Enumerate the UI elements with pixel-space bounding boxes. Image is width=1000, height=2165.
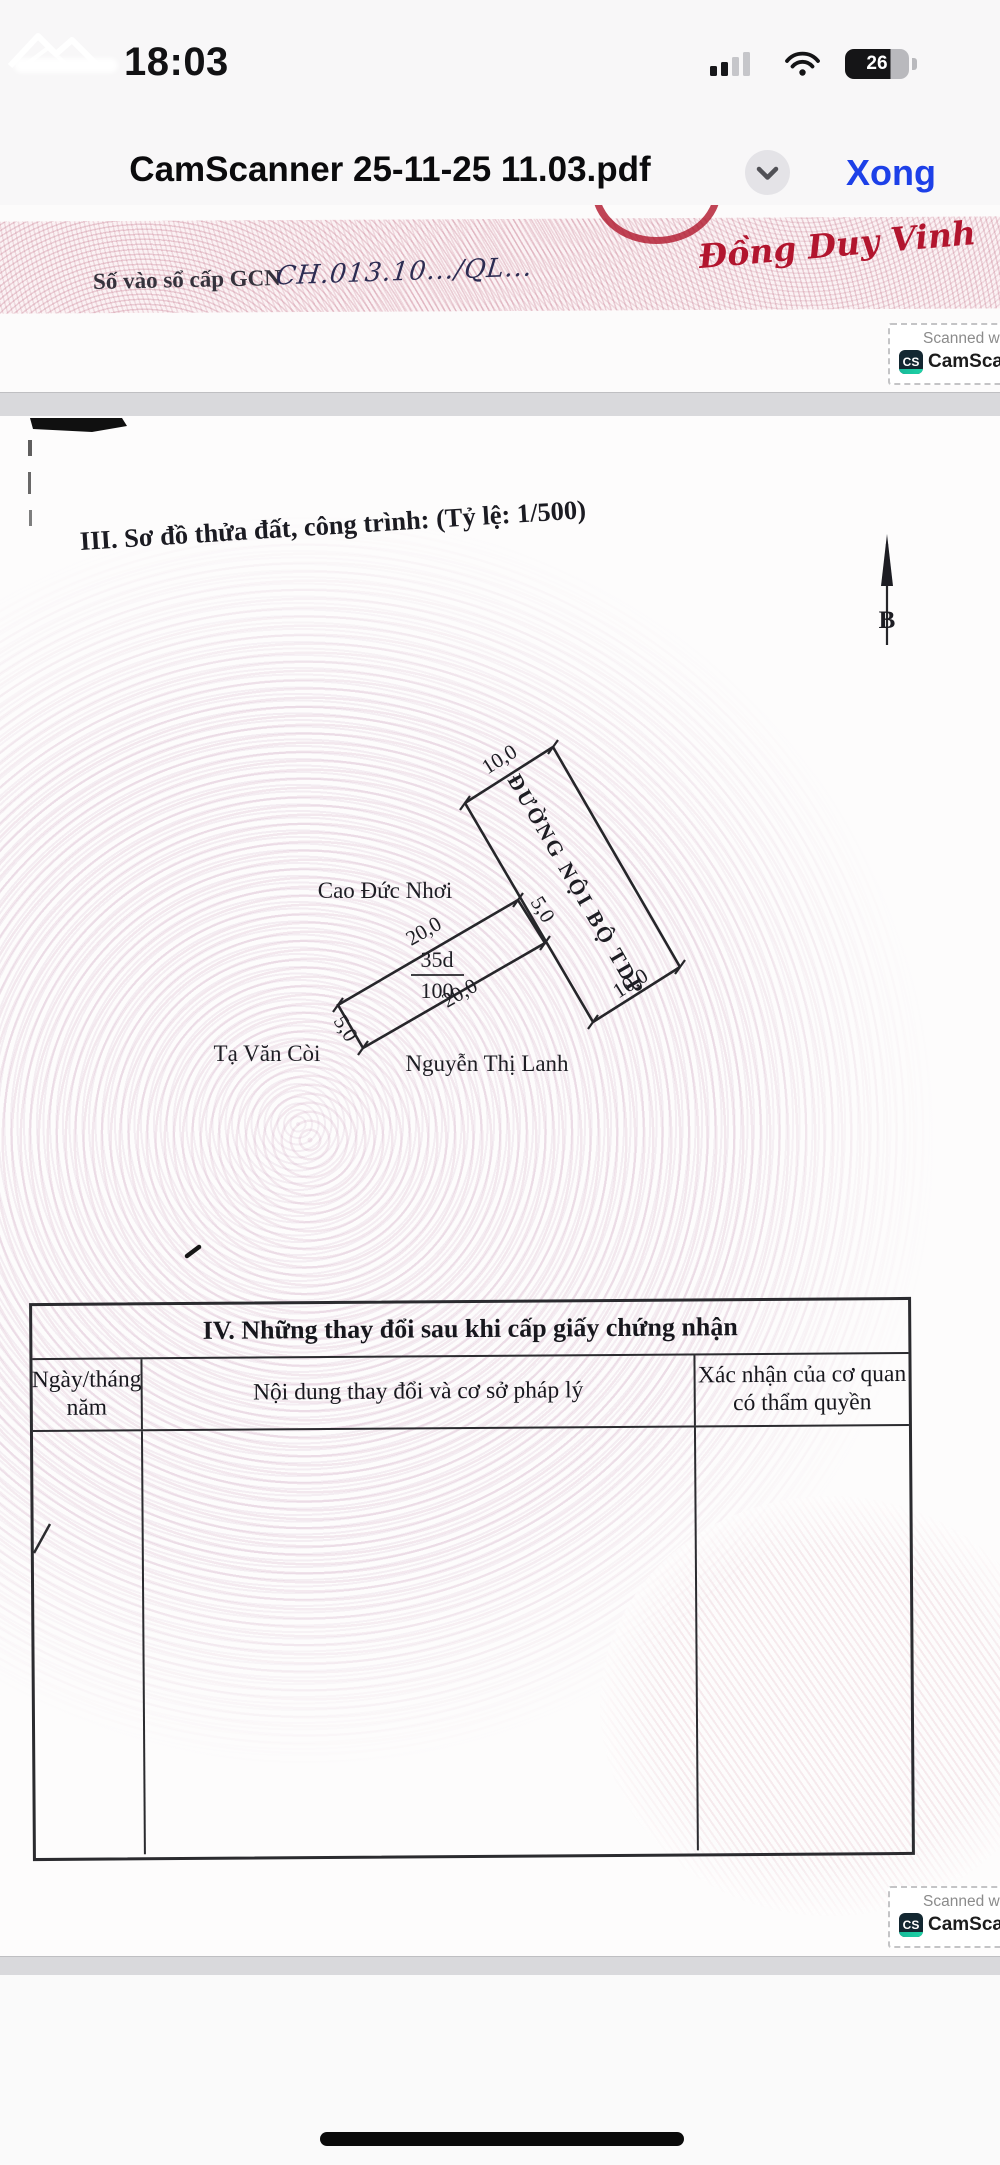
title-menu-button[interactable] xyxy=(745,150,790,195)
section-iv-table: IV. Những thay đổi sau khi cấp giấy chứn… xyxy=(29,1297,915,1861)
badge-scanned-with: Scanned with xyxy=(923,330,1000,348)
toolbar-separator xyxy=(0,1956,1000,1977)
battery-percent: 26 xyxy=(866,53,887,75)
badge-brand: CamScanner xyxy=(928,351,1000,373)
badge-scanned-with: Scanned with xyxy=(923,1893,1000,1911)
watermark-logo xyxy=(4,14,129,84)
road-name: ĐƯỜNG NỘI BỘ TDP xyxy=(503,770,650,1000)
col-header-confirmation: Xác nhận của cơ quan có thẩm quyền xyxy=(695,1354,908,1425)
registry-number-label: Số vào sổ cấp GCN xyxy=(93,265,281,295)
pdf-page-2: III. Sơ đồ thửa đất, công trình: (Tỷ lệ:… xyxy=(0,416,1000,1956)
camscanner-logo-icon: CS xyxy=(899,1913,923,1937)
dim-side-top: 20,0 xyxy=(402,911,446,950)
watermark-text-blur xyxy=(14,58,118,73)
neighbor-top: Cao Đức Nhơi xyxy=(318,878,453,903)
table-title: IV. Những thay đổi sau khi cấp giấy chứn… xyxy=(32,1300,908,1360)
pdf-page-1: Số vào sổ cấp GCN CH.013.10.../QL... Đồn… xyxy=(0,205,1000,392)
camscanner-logo-icon: CS xyxy=(899,350,923,374)
camscanner-badge: Scanned with CS CamScanner xyxy=(888,323,1000,385)
document-title: CamScanner 25-11-25 11.03.pdf xyxy=(40,150,740,190)
wifi-icon xyxy=(784,50,821,77)
iphone-screen: 18:03 26 CamScanner 25-11-25 11.03.pdf X… xyxy=(0,0,1000,2165)
badge-brand: CamScanner xyxy=(928,1914,1000,1936)
battery-icon: 26 xyxy=(845,49,909,79)
camscanner-badge: Scanned with CS CamScanner xyxy=(888,1886,1000,1948)
col-header-date: Ngày/tháng năm xyxy=(32,1359,142,1430)
cellular-signal-icon xyxy=(710,50,754,77)
col-header-content: Nội dung thay đổi và cơ sở pháp lý xyxy=(142,1355,695,1429)
status-time: 18:03 xyxy=(124,40,229,85)
north-label: B xyxy=(879,607,896,634)
done-button[interactable]: Xong xyxy=(846,152,936,194)
neighbor-left: Tạ Văn Còi xyxy=(214,1041,321,1066)
chevron-down-icon xyxy=(745,150,790,195)
top-chrome: 18:03 26 CamScanner 25-11-25 11.03.pdf X… xyxy=(0,0,1000,206)
parcel-area: 100 xyxy=(421,978,454,1003)
neighbor-bottom: Nguyễn Thị Lanh xyxy=(405,1051,569,1076)
home-indicator[interactable] xyxy=(320,2132,684,2146)
parcel-number: 35d xyxy=(421,947,454,972)
table-body-empty xyxy=(33,1426,912,1855)
page-separator xyxy=(0,392,1000,418)
dim-road-top: 10,0 xyxy=(477,739,521,779)
